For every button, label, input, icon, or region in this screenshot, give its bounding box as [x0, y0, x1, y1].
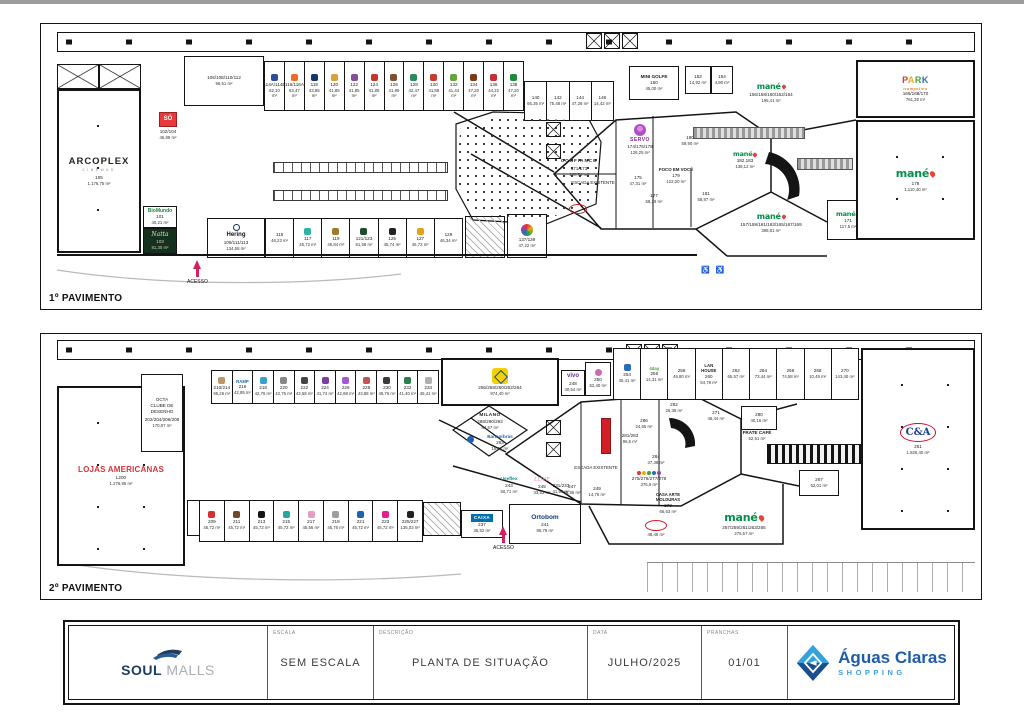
- store-so: SÓ: [159, 112, 177, 127]
- kiosk-bancorbras: Bancorbrás 293 18,91 m²: [477, 434, 523, 452]
- store-area: 95,26 m²: [213, 391, 230, 396]
- shop-logo-icon: [450, 74, 457, 81]
- shop-logo-icon: [389, 228, 396, 235]
- soul-malls-swoosh-icon: [151, 647, 185, 660]
- store-useflex: Useflex 243 50,71 m²: [493, 472, 525, 500]
- store-area: 50,71 m²: [501, 489, 518, 495]
- red-oval-logo-icon: [569, 204, 587, 214]
- shop-cell: 220 42,76 m²: [273, 371, 294, 403]
- travelator: [797, 158, 853, 170]
- store-area: 1.110,40 m²: [904, 187, 927, 193]
- store-area: 40,54 m²: [565, 387, 582, 393]
- shop-logo-icon: [624, 364, 631, 371]
- arcoplex-logo: ARCOPLEX: [69, 156, 130, 168]
- store-152: 152 14,92 m²: [685, 66, 711, 94]
- shop-cell: 262 65,57 m²: [722, 349, 749, 399]
- red-oval-logo-icon: [645, 520, 667, 531]
- store-mane-top: mané 156/158/160/162/164 195,41 m²: [729, 76, 813, 110]
- store-286: 286 24,65 m²: [629, 416, 659, 432]
- elevator-icon: [604, 33, 620, 49]
- aguas-claras-logo: Águas Claras SHOPPING: [795, 643, 947, 683]
- store-area: 36,52 m²: [474, 528, 491, 534]
- store-area: 37,38 m²: [648, 460, 665, 466]
- shop-cell: LAN HOUSE 260 54,78 m²: [695, 349, 722, 399]
- shop-cell: 136 44,22 m²: [483, 62, 503, 110]
- shop-logo-icon: [407, 511, 414, 518]
- access-arrow-icon: [196, 269, 199, 277]
- store-arcoplex: ARCOPLEX CINEMAS 105 1.176,75 m²: [57, 89, 141, 253]
- shop-cell: 121/123 91,58 m²: [349, 219, 377, 257]
- store-name: SÓ: [164, 116, 173, 124]
- shop-cell: 117 45,72 m²: [293, 219, 321, 257]
- shop-cell: 232 41,40 m²: [397, 371, 418, 403]
- store-foco-em-voce: FOCO EM VOCÊ 179 122,00 m²: [655, 164, 697, 188]
- shop-cell: 270 143,40 m²: [831, 349, 858, 399]
- shop-logo-icon: [342, 377, 349, 384]
- access-label: ACESSO: [187, 279, 208, 285]
- shop-cell: 144 47,28 m²: [569, 82, 591, 120]
- shop-cell: 125 45,74 m²: [378, 219, 406, 257]
- shop-cell: 129 46,34 m²: [434, 219, 462, 257]
- mane-wordmark: mané: [836, 210, 855, 218]
- escala-value: SEM ESCALA: [280, 657, 360, 669]
- store-area: 65,35 m²: [527, 101, 544, 106]
- store-area: 761,30 m²: [906, 97, 925, 103]
- shop-cell: 114A/114B 62,10 m²: [265, 62, 284, 110]
- store-area: 1.176,75 m²: [88, 181, 111, 187]
- bancorbras-logo-icon: [467, 436, 474, 443]
- store-name: LAN HOUSE: [697, 363, 721, 374]
- store-250: 250 52,40 m²: [585, 362, 611, 396]
- store-vivo: vivo 248 40,54 m²: [561, 370, 585, 396]
- caixa-logo: CAIXA: [471, 514, 493, 522]
- shop-cell: 132 41,44 m²: [443, 62, 463, 110]
- store-282: 282 26,36 m²: [659, 400, 689, 416]
- shop-cell: 115 46,23 m²: [266, 219, 293, 257]
- shop-cell: 211 45,72 m²: [224, 501, 249, 541]
- store-area: 26,36 m²: [666, 408, 683, 414]
- access-arrow-icon: [502, 535, 505, 543]
- parking-stalls: [647, 562, 975, 592]
- shop-logo-icon: [357, 511, 364, 518]
- elevator-icon: [546, 442, 561, 457]
- mane-logo: mané: [757, 212, 786, 222]
- mane-comma-icon: [781, 214, 786, 219]
- store-area: 74,58 m²: [782, 374, 799, 379]
- store-area: 48,46 m²: [648, 532, 665, 538]
- store-106-112: 106/108/110/112 96,51 m²: [184, 56, 264, 106]
- mane-comma-icon: [753, 152, 758, 157]
- store-mini-golfe: MINI GOLFE 150 45,00 m²: [629, 66, 679, 100]
- store-area: 376,9 m²: [641, 482, 658, 488]
- shop-cell: 116/116A 63,47 m²: [284, 62, 304, 110]
- title-block-pranchas: PRANCHAS 01/01: [701, 626, 787, 699]
- store-area: 54,78 m²: [700, 380, 717, 385]
- confiance-logo: CONFIANCE: [561, 158, 597, 164]
- shop-cell: 209 45,72 m²: [200, 501, 224, 541]
- store-confiance-caption: 171/173 128,74 m²: [551, 166, 607, 178]
- store-area: 96,5 m²: [623, 439, 638, 445]
- store-area: 46,34 m²: [440, 238, 457, 243]
- store-area: 33,53 m²: [534, 490, 551, 496]
- stair-label: ESCADA EXISTENTE: [571, 180, 614, 186]
- store-frate-cafe: FRATE CAFÉ 52,51 m²: [735, 428, 779, 444]
- store-so-caption: 102/104 46,89 m²: [145, 129, 191, 141]
- access-arrow-icon: [499, 526, 507, 535]
- store-area: 128,74 m²: [569, 172, 588, 178]
- park-logo: PARK: [902, 75, 929, 87]
- store-175: 175 47,31 m²: [625, 174, 651, 188]
- soul-malls-wordmark: SOUL MALLS: [121, 662, 215, 678]
- title-block-data: DATA JULHO/2025: [587, 626, 701, 699]
- store-area: 47,22 m²: [519, 243, 536, 249]
- soul-malls-logo: SOUL MALLS: [121, 647, 215, 678]
- store-cea: C&A 251 1.826,40 m²: [861, 348, 975, 530]
- store-hering: Hering 109/111/113 134,58 m²: [207, 218, 265, 258]
- shop-logo-icon: [304, 228, 311, 235]
- shop-cell: 119 46,84 m²: [321, 219, 349, 257]
- store-mane-178: mané 178 1.110,40 m²: [856, 120, 975, 240]
- store-area: 46,80 m²: [673, 374, 690, 379]
- store-area: 43,85 m²: [306, 88, 323, 99]
- store-toy: 275/276/277/278 376,9 m²: [617, 468, 681, 490]
- store-area: 47,20 m²: [505, 88, 522, 99]
- store-280: 280 40,16 m²: [741, 406, 777, 430]
- shop-cell: 146 14,42 m²: [591, 82, 613, 120]
- shop-cell: 130 41,88 m²: [423, 62, 443, 110]
- shop-cell: 224 41,74 m²: [314, 371, 335, 403]
- shop-logo-icon: [470, 74, 477, 81]
- store-area: 43,88 m²: [358, 391, 375, 396]
- store-banco-do-brasil: 256/258/260/262/264 974,40 m²: [441, 358, 559, 406]
- shop-cell: 217 45,56 m²: [298, 501, 323, 541]
- store-area: 14,92 m²: [690, 80, 707, 86]
- store-area: 41,85 m²: [346, 88, 363, 99]
- aguas-claras-diamond-icon: [795, 643, 831, 683]
- store-area: 45,76 m²: [378, 391, 395, 396]
- shop-logo-icon: [260, 377, 267, 384]
- store-area: 40,21 m²: [152, 220, 169, 226]
- floor1-top-service-band: [57, 32, 975, 52]
- store-area: 45,72 m²: [278, 525, 295, 530]
- accessibility-icon: ♿♿: [701, 266, 730, 274]
- store-area: 143,40 m²: [835, 374, 854, 379]
- aguas-claras-wordmark: Águas Claras SHOPPING: [838, 649, 947, 677]
- floor1-bracing-room: [57, 64, 99, 89]
- floor1-elevator-bank-top: [586, 33, 638, 49]
- mane-logo: mané: [724, 511, 763, 525]
- floor1-restrooms: [465, 216, 505, 258]
- hering-logo-icon: [233, 224, 240, 231]
- store-ortobom: Ortobom 241 86,79 m²: [509, 504, 581, 544]
- store-area: 58,87 m²: [698, 197, 715, 203]
- shop-cell: 213 45,72 m²: [249, 501, 274, 541]
- store-area: 46,84 m²: [327, 242, 344, 247]
- mane-comma-icon: [929, 170, 937, 178]
- shop-logo-icon: [382, 511, 389, 518]
- store-area: 81,30 m²: [152, 245, 169, 251]
- shop-logo-icon: [360, 228, 367, 235]
- shop-logo-icon: [404, 377, 411, 384]
- store-name: DESENHO: [151, 409, 174, 415]
- store-area: 45,76 m²: [327, 525, 344, 530]
- elevator-icon: [546, 122, 561, 137]
- shop-cell: 118 43,85 m²: [304, 62, 324, 110]
- shop-cell: 223 45,72 m²: [372, 501, 397, 541]
- store-area: 42,85 m²: [234, 390, 251, 395]
- shop-cell: 221 45,72 m²: [348, 501, 373, 541]
- store-area: 128,25 m²: [630, 150, 649, 156]
- brand-sub: SHOPPING: [838, 668, 947, 677]
- store-area: 398,81 m²: [761, 228, 780, 234]
- shop-cell: 225/227 135,03 m²: [397, 501, 422, 541]
- store-area: 45,41 m²: [619, 378, 636, 383]
- store-area: 52,51 m²: [749, 436, 766, 442]
- shop-logo-icon: [363, 377, 370, 384]
- store-area: 42,88 m²: [337, 391, 354, 396]
- stair-label: ESCADA EXISTENTE: [574, 465, 617, 471]
- mane-logo: mané: [757, 82, 786, 92]
- lojas-americanas-logo: LOJAS AMERICANAS: [78, 465, 164, 475]
- shop-cell: 128 42,47 m²: [403, 62, 423, 110]
- floor2-access-arrow: ACESSO: [493, 526, 514, 551]
- mane-logo: mané: [733, 150, 757, 158]
- store-area: 36,86 m²: [564, 490, 581, 496]
- store-red-oval: 48,46 m²: [637, 516, 675, 542]
- shop-cell: 4day 256 14,31 m²: [640, 349, 667, 399]
- store-area: 46,89 m²: [160, 135, 177, 141]
- shop-logo-icon: [417, 228, 424, 235]
- shop-cell: 254 45,41 m²: [614, 349, 640, 399]
- store-area: 75,48 m²: [549, 101, 566, 106]
- travelator: [693, 127, 805, 139]
- store-249: 249 14,76 m²: [585, 484, 609, 500]
- store-park-trampolins: PARK trampolins 166/168/170 761,30 m²: [856, 60, 975, 118]
- store-area: 59,90 m²: [682, 141, 699, 147]
- data-value: JULHO/2025: [608, 657, 682, 669]
- store-area: 18,91 m²: [492, 446, 509, 452]
- store-area: 65,57 m²: [728, 374, 745, 379]
- store-area: 41,74 m²: [317, 391, 334, 396]
- store-area: 41,88 m²: [425, 88, 442, 99]
- store-confiance: CONFIANCE: [549, 156, 609, 166]
- store-area: 122,00 m²: [666, 179, 685, 185]
- store-area: 58,29 m²: [646, 199, 663, 205]
- sidewalk-curve: [57, 270, 401, 283]
- store-267: 267 52,01 m²: [799, 470, 839, 496]
- store-271: 271 46,44 m²: [701, 408, 731, 424]
- elevator-icon: [586, 33, 602, 49]
- page-top-edge: [0, 0, 1024, 4]
- floor2-restrooms: [423, 502, 461, 536]
- store-area: 14,42 m²: [594, 101, 611, 106]
- floor2-bottom-shops: 209 45,72 m² 211 45,72 m² 213 45,72 m² 2…: [199, 500, 423, 542]
- shop-cell: 134 47,20 m²: [463, 62, 483, 110]
- store-area: 46,23 m²: [271, 238, 288, 243]
- shop-logo-icon: [390, 74, 397, 81]
- shop-cell: 264 73,44 m²: [749, 349, 776, 399]
- red-sign-store-icon: [601, 418, 611, 454]
- shop-cell: 127 45,72 m²: [406, 219, 434, 257]
- store-area: 45,41 m²: [420, 391, 437, 396]
- shop-logo-icon: [218, 377, 225, 384]
- store-servo: SERVO 174/176/178 128,25 m²: [617, 120, 663, 160]
- store-area: 45,72 m²: [203, 525, 220, 530]
- ortobom-logo: Ortobom: [531, 514, 558, 522]
- shop-cell: 120 41,85 m²: [324, 62, 344, 110]
- store-area: 14,76 m²: [589, 492, 606, 498]
- store-area: 62,10 m²: [266, 88, 283, 99]
- store-area: 45,72 m²: [253, 525, 270, 530]
- shop-cell: 226 42,88 m²: [335, 371, 356, 403]
- floor2-top-shops: 210/214 95,26 m² RAMP 216 42,85 m² 218 4…: [211, 370, 439, 404]
- mane-wordmark: mané: [757, 82, 781, 92]
- kiosk-milano: MILANO 288/290/292 84,57 m²: [463, 412, 517, 432]
- shop-logo-icon: [351, 74, 358, 81]
- store-area: 45,72 m²: [299, 242, 316, 247]
- store-natta: Natta 103 81,30 m²: [143, 228, 177, 254]
- shop-logo-icon: [410, 74, 417, 81]
- store-mane-floor2: mané 257/259/261/263/265 275,57 m²: [689, 506, 799, 542]
- shop-logo-icon: [322, 377, 329, 384]
- servo-logo-icon: [634, 124, 646, 136]
- kiosk-counter: [273, 162, 448, 173]
- colorful-logo-icon: [521, 224, 533, 236]
- cea-logo: C&A: [900, 423, 937, 442]
- spiral-stair-icon: [669, 418, 695, 448]
- shop-cell: 138 47,20 m²: [503, 62, 523, 110]
- shop-logo-icon: [208, 511, 215, 518]
- shop-logo-icon: [271, 74, 278, 81]
- floor1-mid-shops: 140 65,35 m² 142 75,48 m² 144 47,28 m² 1…: [524, 81, 614, 121]
- shop-cell: 230 45,76 m²: [376, 371, 397, 403]
- store-biomundo: BioMundo 101 40,21 m²: [143, 206, 177, 228]
- store-area: 170,87 m²: [152, 423, 171, 429]
- shop-logo-icon: [490, 74, 497, 81]
- title-block-escala: ESCALA SEM ESCALA: [267, 626, 373, 699]
- store-area: 63,47 m²: [286, 88, 303, 99]
- hering-logo: Hering: [226, 232, 245, 240]
- shop-cell: RAMP 216 42,85 m²: [232, 371, 253, 403]
- shop-logo-icon: [258, 511, 265, 518]
- floor1-top-shops: 114A/114B 62,10 m² 116/116A 63,47 m² 118…: [264, 61, 524, 111]
- store-area: 52,01 m²: [811, 483, 828, 489]
- elevator-icon: [622, 33, 638, 49]
- store-area: 41,89 m²: [366, 88, 383, 99]
- title-block-brand: Águas Claras SHOPPING: [787, 626, 954, 699]
- store-247: 247 36,86 m²: [559, 480, 585, 500]
- store-area: 42,76 m²: [275, 391, 292, 396]
- shop-logo-icon: [301, 377, 308, 384]
- shop-logo-icon: [425, 377, 432, 384]
- floor2-title: 2º PAVIMENTO: [49, 583, 122, 594]
- descricao-value: PLANTA DE SITUAÇÃO: [412, 657, 549, 669]
- mane-comma-icon: [781, 84, 786, 89]
- shop-cell: 126 41,89 m²: [384, 62, 404, 110]
- store-area: 1.826,40 m²: [907, 450, 930, 456]
- drawing-sheet: 106/108/110/112 96,51 m² ARCOPLEX CINEMA…: [0, 0, 1024, 724]
- store-area: 47,31 m²: [630, 181, 647, 187]
- store-area: 45,00 m²: [646, 86, 663, 92]
- store-area: 1.276,95 m²: [110, 481, 133, 487]
- elevator-icon: [546, 420, 561, 435]
- shop-logo-icon: [371, 74, 378, 81]
- store-area: 4,90 m²: [715, 80, 730, 86]
- store-area: 42,47 m²: [405, 88, 422, 99]
- mane-wordmark: mané: [757, 212, 781, 222]
- colorful-logo-icon: [637, 471, 661, 475]
- shop-cell: 140 65,35 m²: [525, 82, 546, 120]
- floor1-bracing-room: [99, 64, 141, 89]
- store-area: 41,44 m²: [445, 88, 462, 99]
- shop-cell: 268 10,49 m²: [804, 349, 831, 399]
- title-block-descricao: DESCRIÇÃO PLANTA DE SITUAÇÃO: [373, 626, 587, 699]
- shop-cell: 228 43,88 m²: [355, 371, 376, 403]
- shop-logo-icon: [280, 377, 287, 384]
- shop-logo-icon: [308, 511, 315, 518]
- shop-cell: 210/214 95,26 m²: [212, 371, 232, 403]
- shop-logo-icon: [332, 511, 339, 518]
- store-area: 45,56 m²: [303, 525, 320, 530]
- store-area: 84,57 m²: [482, 425, 499, 431]
- store-mane-182-183: mané 182,183 138,12 m²: [717, 146, 773, 174]
- store-181: 181 58,87 m²: [693, 190, 719, 204]
- arcoplex-sub: CINEMAS: [82, 168, 115, 173]
- floor1-access-arrow: ACESSO: [187, 260, 208, 285]
- store-area: 47,20 m²: [465, 88, 482, 99]
- shop-cell: 222 43,68 m²: [294, 371, 315, 403]
- shop-logo-icon: [291, 74, 298, 81]
- store-area: 195,41 m²: [761, 98, 780, 104]
- store-area: 10,49 m²: [809, 374, 826, 379]
- shop-cell: 219 45,76 m²: [323, 501, 348, 541]
- shop-cell: 215 45,72 m²: [273, 501, 298, 541]
- shop-logo-icon: [595, 369, 602, 376]
- store-area: 45,72 m²: [352, 525, 369, 530]
- store-area: 41,40 m²: [399, 391, 416, 396]
- shop-logo-icon: [233, 511, 240, 518]
- store-area: 44,22 m²: [485, 88, 502, 99]
- store-area: 42,76 m²: [255, 391, 272, 396]
- mane-wordmark: mané: [733, 150, 752, 158]
- store-area: 41,85 m²: [326, 88, 343, 99]
- floor1-panel: 106/108/110/112 96,51 m² ARCOPLEX CINEMA…: [40, 23, 982, 310]
- shop-logo-icon: [311, 74, 318, 81]
- travelator-dark: [767, 444, 871, 464]
- kiosk-counter: [273, 190, 448, 201]
- floor1-bottom-shops: 115 46,23 m² 117 45,72 m² 119 46,84 m² 1…: [265, 218, 463, 258]
- store-octa: OCTA CLUBE DE DESENHO 202/204/206/208 17…: [141, 374, 183, 452]
- store-area: 138,12 m²: [735, 164, 754, 170]
- store-area: 66,63 m²: [660, 509, 677, 515]
- store-area: 91,58 m²: [356, 242, 373, 247]
- shop-logo-icon: [430, 74, 437, 81]
- exterior-wall: [57, 254, 697, 256]
- floor2-topright-shops: 254 45,41 m² 4day 256 14,31 m² 258 46,80…: [613, 348, 859, 400]
- store-area: 43,68 m²: [296, 391, 313, 396]
- store-area: 40,16 m²: [751, 418, 768, 424]
- shop-logo-icon: [332, 228, 339, 235]
- mane-wordmark: mané: [724, 511, 757, 525]
- floor1-title: 1º PAVIMENTO: [49, 293, 122, 304]
- store-casa-arte: CASA ARTE MOLDURAS 273 66,63 m²: [645, 490, 691, 516]
- store-area: 14,31 m²: [646, 377, 663, 382]
- store-area: 134,58 m²: [226, 246, 245, 252]
- descricao-label: DESCRIÇÃO: [379, 630, 413, 636]
- shop-logo-icon: [510, 74, 517, 81]
- access-arrow-icon: [193, 260, 201, 269]
- title-block-inner: SOUL MALLS ESCALA SEM ESCALA DESCRIÇÃO P…: [68, 625, 955, 700]
